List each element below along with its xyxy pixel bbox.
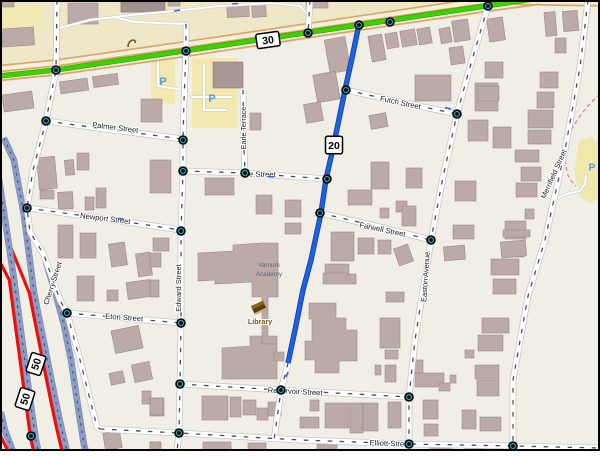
svg-text:Varnum: Varnum	[258, 262, 280, 269]
svg-text:Library: Library	[248, 317, 272, 326]
svg-text:P: P	[208, 93, 215, 105]
svg-text:P: P	[589, 163, 596, 174]
svg-text:30: 30	[261, 34, 274, 48]
svg-text:Earle Terrace: Earle Terrace	[239, 107, 248, 150]
svg-text:Academy: Academy	[256, 271, 283, 278]
svg-text:P: P	[159, 76, 166, 88]
svg-text:20: 20	[328, 140, 340, 152]
svg-text:Edward Street: Edward Street	[174, 263, 183, 311]
